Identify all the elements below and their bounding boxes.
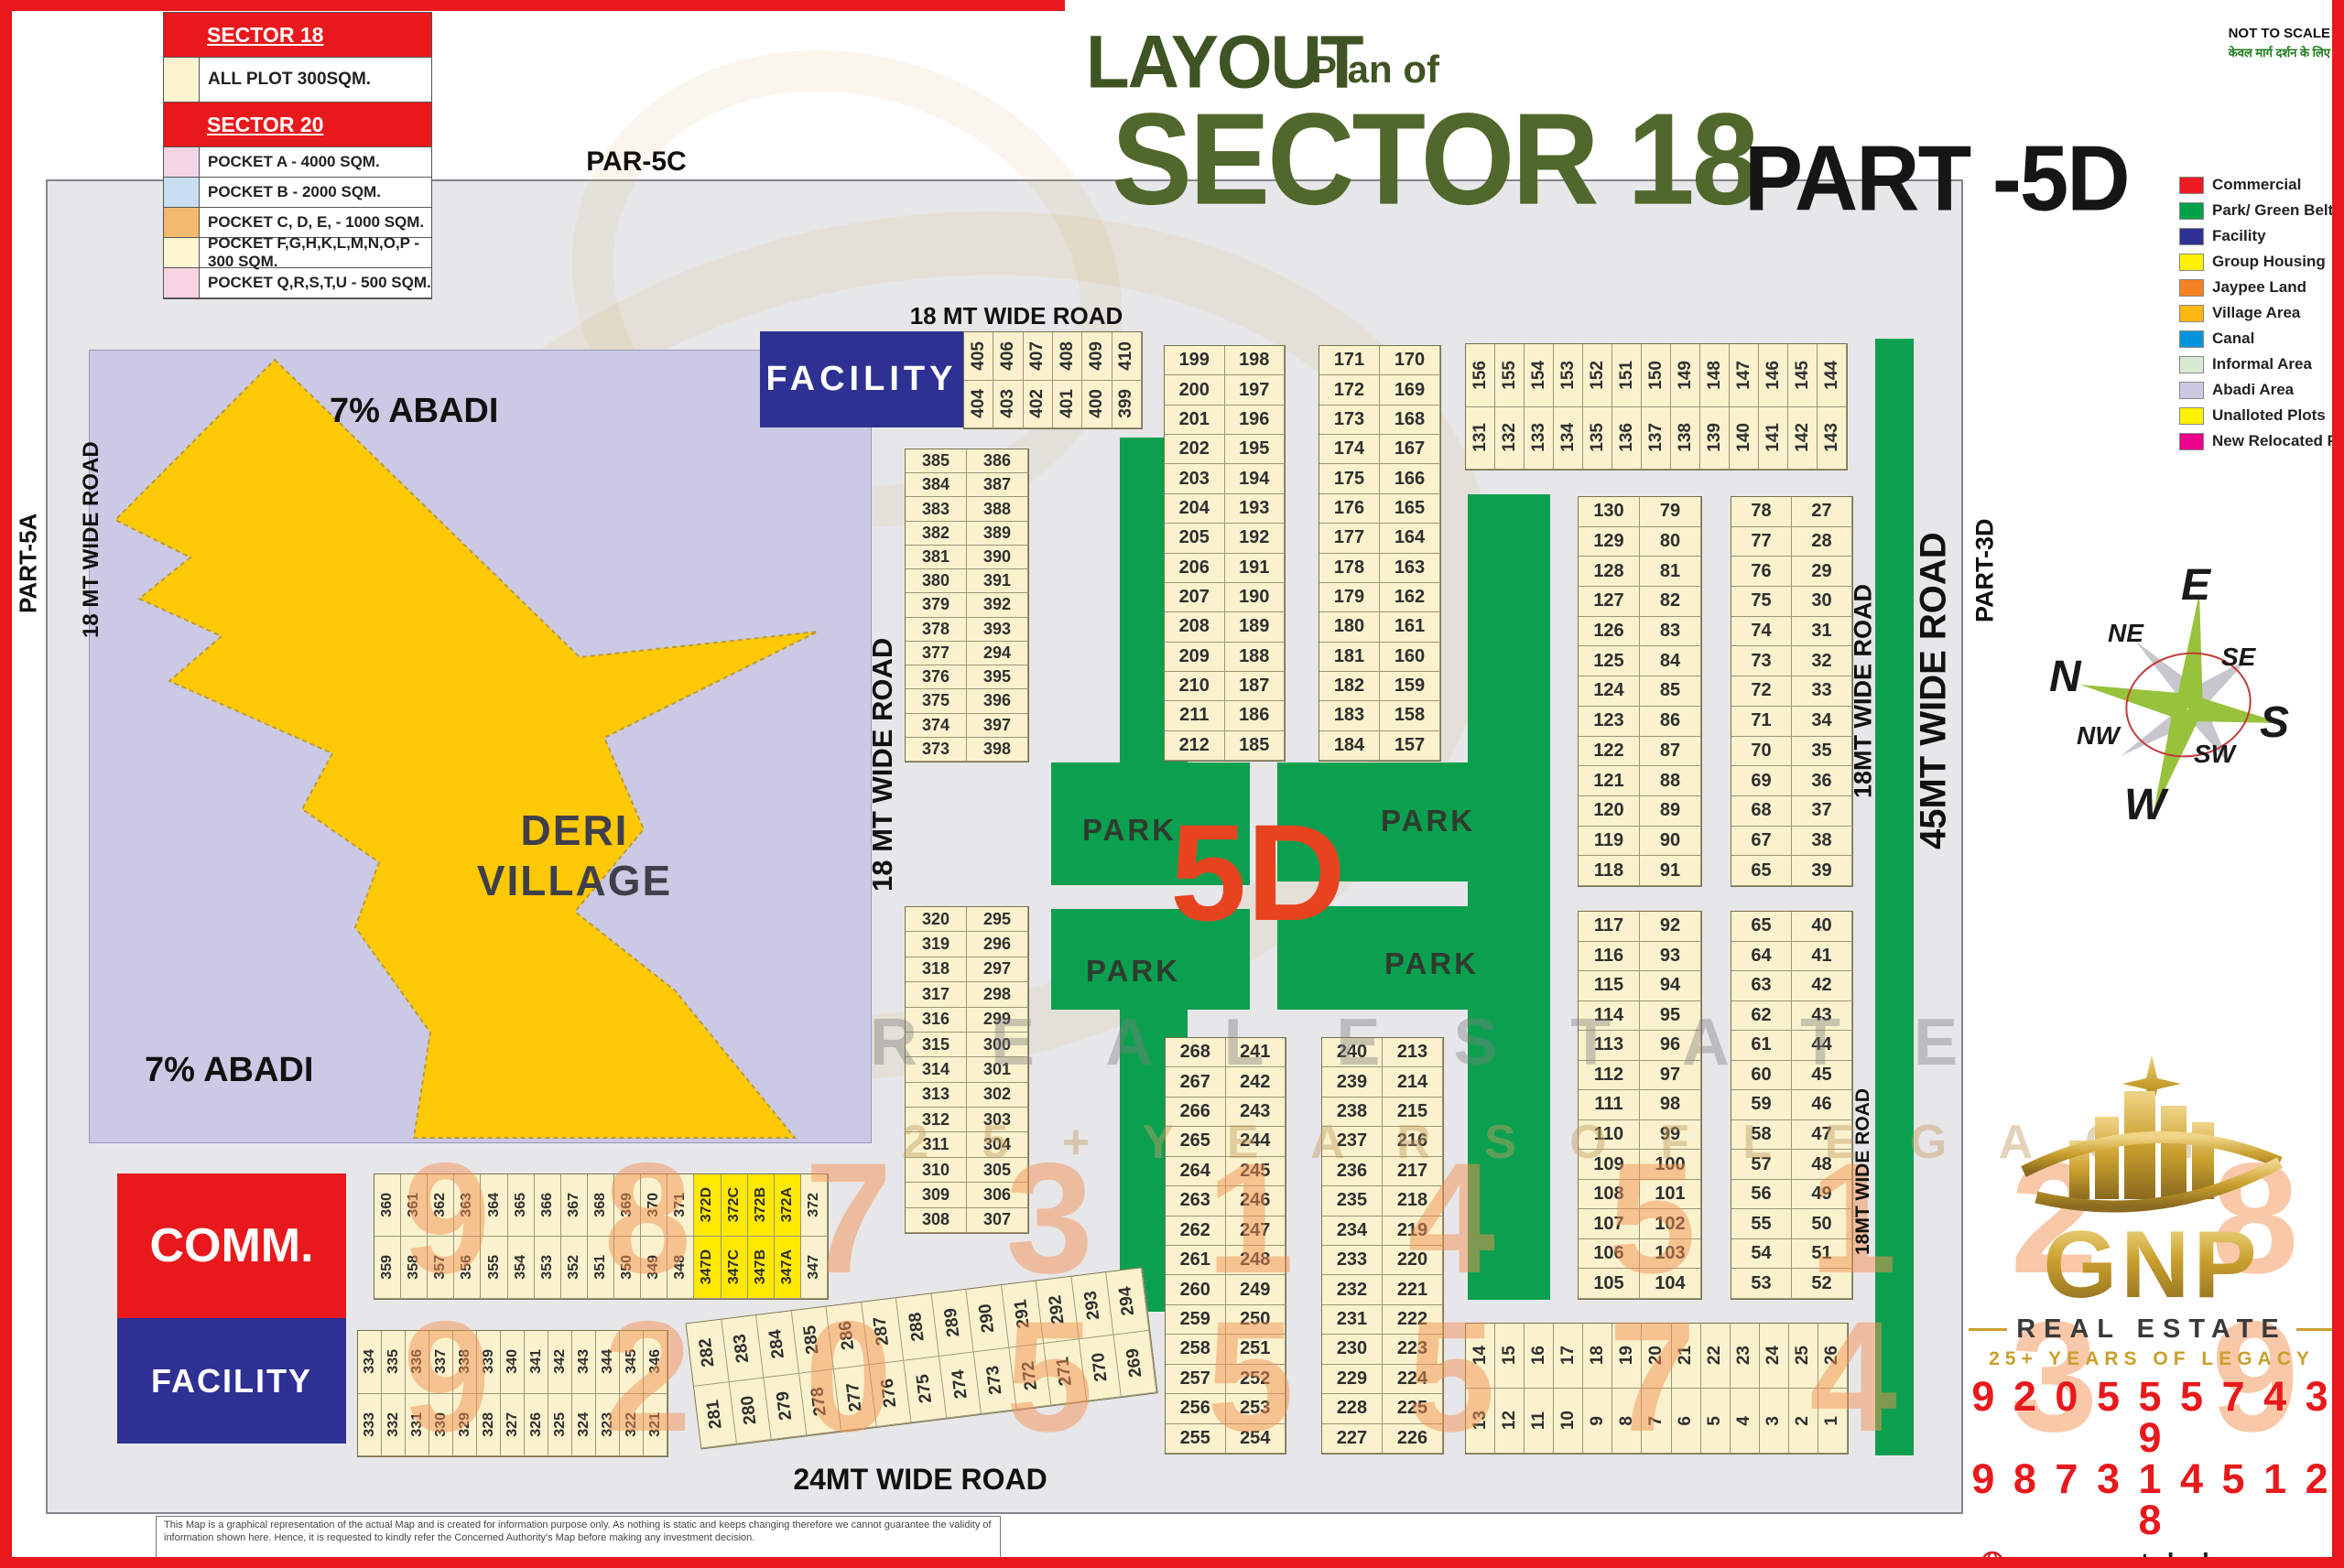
plot-cell: 315 [906, 1033, 967, 1057]
plot-cell: 235 [1322, 1186, 1383, 1216]
plot-cell: 86 [1640, 707, 1701, 737]
plot-cell: 1 [1818, 1389, 1848, 1454]
plot-cell: 222 [1383, 1305, 1443, 1335]
legend-item-row: POCKET A - 4000 SQM. [164, 147, 431, 178]
plot-cell: 93 [1640, 942, 1701, 972]
color-legend-swatch [2179, 177, 2204, 194]
plot-cell: 81 [1640, 557, 1701, 587]
plot-cell: 372B [748, 1174, 775, 1237]
plot-cell: 110 [1579, 1120, 1640, 1151]
legend-swatch [164, 58, 200, 102]
plot-cell: 260 [1166, 1275, 1226, 1304]
color-legend-swatch [2179, 356, 2204, 373]
plot-cell: 227 [1322, 1424, 1383, 1454]
plot-cell: 212 [1165, 731, 1225, 761]
plot-cell: 245 [1226, 1157, 1286, 1186]
plot-cell: 336 [406, 1331, 429, 1394]
plot-cell: 109 [1579, 1150, 1640, 1180]
plot-cell: 130 [1579, 497, 1640, 527]
plot-cell: 149 [1671, 344, 1700, 407]
plot-cell: 386 [967, 449, 1028, 473]
plot-cell: 65 [1731, 856, 1792, 886]
plot-cell: 296 [967, 932, 1028, 957]
plot-cell: 95 [1640, 1001, 1701, 1032]
plot-cell: 232 [1322, 1275, 1383, 1304]
plot-cell: 352 [561, 1237, 588, 1299]
phone-number-1: 9 2 0 5 5 5 7 4 3 9 [1964, 1376, 2339, 1458]
plot-cell: 18 [1583, 1324, 1612, 1389]
legend-text: SECTOR 18 [199, 13, 431, 57]
compass-nw: NW [2077, 721, 2120, 751]
plot-cell: 48 [1792, 1150, 1852, 1180]
plot-strip-321-346: 3343353363373383393403413423433443453463… [357, 1330, 668, 1457]
plot-cell: 85 [1640, 676, 1701, 707]
plot-cell: 82 [1640, 587, 1701, 617]
plot-cell: 216 [1383, 1127, 1443, 1156]
plot-cell: 62 [1731, 1001, 1792, 1032]
plot-cell: 120 [1579, 796, 1640, 827]
color-legend-row: Jaypee Land [2179, 275, 2344, 300]
plot-cell: 184 [1319, 731, 1380, 761]
plot-cell: 409 [1082, 332, 1112, 381]
plot-cell: 234 [1322, 1217, 1383, 1246]
road-18mt-top: 18 MT WIDE ROAD [920, 302, 1112, 330]
comm-block: COMM. [117, 1173, 346, 1318]
plot-cell: 87 [1640, 737, 1701, 767]
deri-village-line1: DERI [476, 806, 673, 855]
abadi-label-bottom: 7% ABADI [145, 1051, 313, 1090]
plot-cell: 330 [429, 1394, 453, 1457]
plot-cell: 32 [1792, 646, 1852, 676]
compass-se: SE [2221, 643, 2255, 672]
plot-cell: 46 [1792, 1090, 1852, 1120]
plot-cell: 191 [1225, 554, 1286, 583]
plot-cell: 362 [428, 1174, 454, 1237]
plot-cell: 304 [967, 1132, 1028, 1157]
plot-cell: 203 [1165, 464, 1225, 493]
plot-cell: 158 [1380, 701, 1440, 730]
plot-cell: 13 [1466, 1389, 1495, 1454]
plot-cell: 209 [1165, 643, 1225, 672]
road-18mt-left: 18 MT WIDE ROAD [75, 426, 108, 654]
real-estate-text: REAL ESTATE [2016, 1314, 2287, 1345]
plot-cell: 72 [1731, 676, 1792, 707]
plot-cell: 377 [906, 642, 967, 665]
plot-cell: 302 [967, 1083, 1028, 1108]
plot-cell: 320 [906, 907, 967, 932]
plot-cell: 180 [1319, 612, 1380, 642]
plot-cell: 39 [1792, 856, 1852, 886]
plot-cell: 258 [1166, 1335, 1226, 1364]
plot-cell: 122 [1579, 737, 1640, 767]
plot-cell: 256 [1166, 1394, 1226, 1423]
plot-cell: 194 [1225, 464, 1286, 493]
plot-strip-399-410: 405406407408409410404403402401400399 [963, 331, 1143, 429]
plot-cell: 379 [906, 593, 967, 617]
deri-village-line2: VILLAGE [476, 856, 673, 905]
plot-cell: 61 [1731, 1031, 1792, 1061]
plot-cell: 263 [1166, 1186, 1226, 1216]
layout-map-page: LAYOUT Plan of SECTOR 18 PART -5D NOT TO… [0, 0, 2344, 1568]
plot-cell: 161 [1380, 612, 1440, 642]
plot-cell: 176 [1319, 494, 1380, 524]
plot-cell: 26 [1818, 1324, 1848, 1389]
plot-block-385-398: 3853863843873833883823893813903803913793… [905, 449, 1029, 762]
color-legend-label: Abadi Area [2212, 381, 2294, 399]
plot-cell: 372D [694, 1174, 721, 1237]
plot-cell: 390 [967, 546, 1028, 569]
title-sector: SECTOR 18 [1112, 84, 1756, 233]
legend-swatch [164, 147, 200, 177]
plot-cell: 179 [1319, 583, 1380, 612]
color-legend-row: Informal Area [2179, 351, 2344, 377]
plot-cell: 74 [1731, 617, 1792, 647]
plot-cell: 295 [967, 907, 1028, 932]
plot-cell: 307 [967, 1208, 1028, 1233]
legend-swatch [164, 178, 200, 207]
plot-cell: 67 [1731, 827, 1792, 857]
legend-text: ALL PLOT 300SQM. [200, 58, 431, 102]
plot-cell: 88 [1640, 766, 1701, 796]
color-legend-swatch [2179, 228, 2204, 245]
color-legend-label: New Relocated Plots [2212, 432, 2344, 450]
plot-cell: 225 [1383, 1394, 1443, 1423]
plot-cell: 250 [1226, 1305, 1286, 1335]
plot-cell: 357 [428, 1237, 454, 1299]
plot-cell: 178 [1319, 554, 1380, 583]
plot-cell: 41 [1792, 942, 1852, 972]
plot-cell: 107 [1579, 1209, 1640, 1239]
plot-cell: 242 [1226, 1067, 1286, 1097]
plot-cell: 373 [906, 738, 967, 762]
plot-cell: 175 [1319, 464, 1380, 493]
plot-cell: 150 [1642, 344, 1671, 407]
plot-cell: 317 [906, 982, 967, 1007]
plot-cell: 43 [1792, 1001, 1852, 1032]
plot-cell: 205 [1165, 524, 1225, 553]
plot-cell: 391 [967, 569, 1028, 593]
plot-cell: 397 [967, 714, 1028, 738]
plot-cell: 410 [1112, 332, 1142, 381]
plot-cell: 69 [1731, 766, 1792, 796]
plot-cell: 396 [967, 689, 1028, 713]
plot-cell: 114 [1579, 1001, 1640, 1032]
plot-cell: 96 [1640, 1031, 1701, 1061]
green-belt-right [1875, 339, 1914, 1455]
plot-cell: 372C [722, 1174, 748, 1237]
plot-cell: 325 [548, 1394, 572, 1457]
plot-cell: 341 [525, 1331, 548, 1394]
plot-cell: 104 [1640, 1269, 1701, 1299]
plot-cell: 35 [1792, 737, 1852, 767]
plot-cell: 297 [967, 957, 1028, 982]
plot-cell: 324 [572, 1394, 596, 1457]
color-legend-swatch [2179, 330, 2204, 348]
road-45mt: 45MT WIDE ROAD [1912, 453, 1956, 929]
plot-cell: 366 [535, 1174, 561, 1237]
plot-cell: 229 [1322, 1365, 1383, 1394]
plot-cell: 102 [1640, 1209, 1701, 1239]
plot-cell: 151 [1612, 344, 1642, 407]
plot-cell: 217 [1383, 1157, 1443, 1186]
plot-cell: 78 [1731, 497, 1792, 527]
plot-cell: 347D [694, 1237, 721, 1299]
plot-block-213-240: 2402132392142382152372162362172352182342… [1321, 1037, 1444, 1454]
color-legend-row: Abadi Area [2179, 377, 2344, 403]
plot-cell: 124 [1579, 676, 1640, 707]
park-label-3: PARK [1086, 954, 1180, 989]
plot-cell: 17 [1554, 1324, 1583, 1389]
plot-cell: 349 [641, 1237, 667, 1299]
plot-cell: 101 [1640, 1180, 1701, 1210]
compass-ne: NE [2108, 619, 2143, 648]
plot-cell: 200 [1165, 375, 1225, 405]
compass-n: N [2049, 652, 2081, 702]
plot-cell: 347 [801, 1237, 828, 1299]
plot-cell: 310 [906, 1158, 967, 1183]
plot-cell: 22 [1701, 1324, 1731, 1389]
plot-cell: 350 [614, 1237, 641, 1299]
color-legend-row: Village Area [2179, 300, 2344, 326]
plot-cell: 52 [1792, 1269, 1852, 1299]
plot-cell: 402 [1024, 381, 1053, 429]
plot-cell: 118 [1579, 856, 1640, 886]
plot-cell: 365 [508, 1174, 535, 1237]
color-legend-label: Village Area [2212, 304, 2300, 322]
plot-cell: 201 [1165, 406, 1225, 435]
color-legend-label: Canal [2212, 330, 2254, 348]
color-legend-label: Unalloted Plots [2212, 406, 2326, 425]
plot-cell: 337 [429, 1331, 453, 1394]
plot-strip-131-156: 1561551541531521511501491481471461451441… [1465, 343, 1848, 470]
plot-cell: 34 [1792, 707, 1852, 737]
plot-cell: 54 [1731, 1239, 1792, 1270]
plot-cell: 265 [1166, 1127, 1226, 1156]
plot-cell: 247 [1226, 1217, 1286, 1246]
plot-cell: 399 [1112, 381, 1142, 429]
facility-block-top: FACILITY [760, 331, 963, 427]
plot-cell: 388 [967, 497, 1028, 521]
plot-cell: 75 [1731, 587, 1792, 617]
plot-cell: 195 [1225, 435, 1286, 464]
plot-cell: 146 [1759, 344, 1788, 407]
plot-cell: 240 [1322, 1038, 1383, 1067]
plot-cell: 313 [906, 1083, 967, 1108]
color-legend-label: Group Housing [2212, 253, 2326, 271]
plot-cell: 351 [588, 1237, 614, 1299]
plot-cell: 19 [1612, 1324, 1642, 1389]
plot-cell: 20 [1642, 1324, 1671, 1389]
plot-cell: 355 [481, 1237, 507, 1299]
plot-cell: 204 [1165, 494, 1225, 524]
plot-cell: 215 [1383, 1098, 1443, 1127]
park-label-2: PARK [1381, 804, 1475, 838]
plot-cell: 378 [906, 618, 967, 642]
plot-cell: 233 [1322, 1246, 1383, 1275]
plot-cell: 135 [1583, 407, 1612, 470]
plot-cell: 347A [775, 1237, 801, 1299]
legend-swatch [164, 13, 199, 57]
plot-cell: 326 [525, 1394, 548, 1457]
compass-e: E [2181, 560, 2210, 611]
plot-cell: 23 [1731, 1324, 1760, 1389]
plot-block-92-117: 1179211693115941149511396112971119811099… [1578, 911, 1702, 1300]
plot-cell: 319 [906, 932, 967, 957]
legend-text: POCKET C, D, E, - 1000 SQM. [200, 208, 431, 237]
plot-cell: 294 [1107, 1268, 1150, 1335]
gnp-logo-text: GNP [1964, 1217, 2339, 1313]
plot-cell: 56 [1731, 1180, 1792, 1210]
plot-cell: 55 [1731, 1209, 1792, 1239]
plot-cell: 28 [1792, 527, 1852, 557]
part-3d-label: PART-3D [1967, 502, 2003, 639]
plot-cell: 143 [1818, 407, 1847, 470]
plot-cell: 262 [1166, 1217, 1226, 1246]
deri-village-polygon [89, 350, 870, 1141]
plot-cell: 254 [1226, 1424, 1286, 1454]
plot-cell: 154 [1525, 344, 1554, 407]
plot-cell: 405 [964, 332, 993, 381]
plot-cell: 11 [1525, 1389, 1554, 1454]
legend-item-row: ALL PLOT 300SQM. [164, 58, 431, 103]
color-legend-label: Park/ Green Belt [2212, 201, 2333, 220]
color-legend-swatch [2179, 279, 2204, 297]
plot-strip-347-372: 360361362363364365366367368369370371372D… [374, 1173, 829, 1300]
plot-cell: 113 [1579, 1031, 1640, 1061]
plot-cell: 47 [1792, 1120, 1852, 1151]
plot-cell: 153 [1554, 344, 1583, 407]
plot-cell: 100 [1640, 1150, 1701, 1180]
color-legend-row: New Relocated Plots [2179, 428, 2344, 454]
plot-block-157-184: 1711701721691731681741671751661761651771… [1318, 345, 1441, 762]
color-legend-swatch [2179, 433, 2204, 450]
plot-cell: 4 [1731, 1389, 1760, 1454]
plot-cell: 345 [620, 1331, 644, 1394]
plot-cell: 5 [1701, 1389, 1731, 1454]
plot-cell: 182 [1319, 672, 1380, 701]
plot-cell: 246 [1226, 1186, 1286, 1216]
plot-cell: 187 [1225, 672, 1286, 701]
plot-cell: 318 [906, 957, 967, 982]
plot-cell: 333 [358, 1394, 382, 1457]
plot-cell: 181 [1319, 643, 1380, 672]
plot-cell: 76 [1731, 557, 1792, 587]
compass-w: W [2124, 780, 2165, 830]
color-legend-swatch [2179, 202, 2204, 220]
plot-cell: 108 [1579, 1180, 1640, 1210]
plot-cell: 44 [1792, 1031, 1852, 1061]
plot-cell: 64 [1731, 942, 1792, 972]
plot-cell: 253 [1226, 1394, 1286, 1423]
sector-legend-table: SECTOR 18ALL PLOT 300SQM.SECTOR 20POCKET… [163, 12, 432, 299]
plot-cell: 300 [967, 1033, 1028, 1057]
plot-cell: 347B [748, 1237, 775, 1299]
plot-cell: 188 [1225, 643, 1286, 672]
abadi-label-top: 7% ABADI [330, 392, 498, 431]
plot-cell: 49 [1792, 1180, 1852, 1210]
plot-cell: 190 [1225, 583, 1286, 612]
plot-cell: 91 [1640, 856, 1701, 886]
plot-cell: 70 [1731, 737, 1792, 767]
plot-cell: 40 [1792, 912, 1852, 942]
plot-cell: 299 [967, 1008, 1028, 1033]
plot-cell: 123 [1579, 707, 1640, 737]
plot-cell: 126 [1579, 617, 1640, 647]
plot-cell: 238 [1322, 1098, 1383, 1127]
plot-cell: 346 [644, 1331, 667, 1394]
plot-cell: 206 [1165, 554, 1225, 583]
plot-cell: 316 [906, 1008, 967, 1033]
color-legend-swatch [2179, 407, 2204, 425]
legend-swatch [164, 238, 200, 267]
plot-cell: 321 [644, 1394, 667, 1457]
plot-cell: 31 [1792, 617, 1852, 647]
plot-cell: 71 [1731, 707, 1792, 737]
plot-cell: 45 [1792, 1061, 1852, 1091]
plot-cell: 58 [1731, 1120, 1792, 1151]
plot-cell: 269 [1114, 1330, 1157, 1397]
plot-cell: 267 [1166, 1067, 1226, 1097]
plot-cell: 155 [1495, 344, 1525, 407]
plot-block-118-130: 1307912980128811278212683125841248512386… [1578, 496, 1702, 887]
plot-cell: 169 [1380, 375, 1440, 405]
plot-cell: 116 [1579, 942, 1640, 972]
plot-cell: 348 [667, 1237, 694, 1299]
plot-cell: 353 [535, 1237, 561, 1299]
park-label-1: PARK [1082, 813, 1177, 848]
plot-cell: 30 [1792, 587, 1852, 617]
plot-cell: 368 [588, 1174, 614, 1237]
plot-cell: 132 [1495, 407, 1525, 470]
plot-cell: 172 [1319, 375, 1380, 405]
color-legend: CommercialPark/ Green BeltFacilityGroup … [2179, 172, 2344, 454]
plot-cell: 99 [1640, 1120, 1701, 1151]
plot-cell: 77 [1731, 527, 1792, 557]
color-legend-row: Commercial [2179, 172, 2344, 198]
plot-cell: 79 [1640, 497, 1701, 527]
plot-cell: 404 [964, 381, 993, 429]
plot-cell: 137 [1642, 407, 1671, 470]
plot-cell: 403 [993, 381, 1023, 429]
road-18mt-right-1: 18MT WIDE ROAD [1848, 490, 1879, 892]
plot-cell: 157 [1380, 731, 1440, 761]
color-legend-label: Informal Area [2212, 355, 2312, 373]
plot-cell: 29 [1792, 557, 1852, 587]
color-legend-label: Commercial [2212, 176, 2301, 194]
plot-cell: 208 [1165, 612, 1225, 642]
plot-cell: 264 [1166, 1157, 1226, 1186]
plot-cell: 311 [906, 1132, 967, 1157]
plot-cell: 314 [906, 1057, 967, 1082]
plot-cell: 226 [1383, 1424, 1443, 1454]
plot-cell: 305 [967, 1158, 1028, 1183]
legend-header-row: SECTOR 20 [164, 103, 431, 147]
plot-cell: 257 [1166, 1365, 1226, 1394]
plot-cell: 230 [1322, 1335, 1383, 1364]
plot-cell: 376 [906, 665, 967, 689]
plot-cell: 294 [967, 642, 1028, 665]
color-legend-row: Canal [2179, 326, 2344, 351]
legend-swatch [164, 268, 200, 297]
plot-cell: 393 [967, 618, 1028, 642]
frame-top [0, 0, 1065, 11]
plot-cell: 392 [967, 593, 1028, 617]
plot-cell: 369 [614, 1174, 641, 1237]
legend-item-row: POCKET Q,R,S,T,U - 500 SQM. [164, 268, 431, 298]
plot-cell: 90 [1640, 827, 1701, 857]
plot-cell: 133 [1525, 407, 1554, 470]
plot-cell: 241 [1226, 1038, 1286, 1067]
